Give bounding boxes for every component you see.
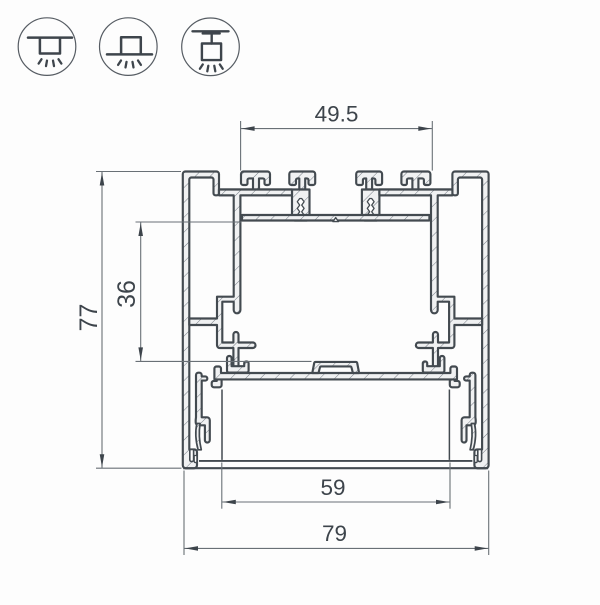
svg-text:49.5: 49.5	[315, 102, 359, 127]
svg-text:36: 36	[113, 280, 141, 308]
svg-text:59: 59	[320, 475, 345, 500]
svg-text:77: 77	[75, 304, 103, 332]
svg-text:79: 79	[322, 521, 347, 546]
